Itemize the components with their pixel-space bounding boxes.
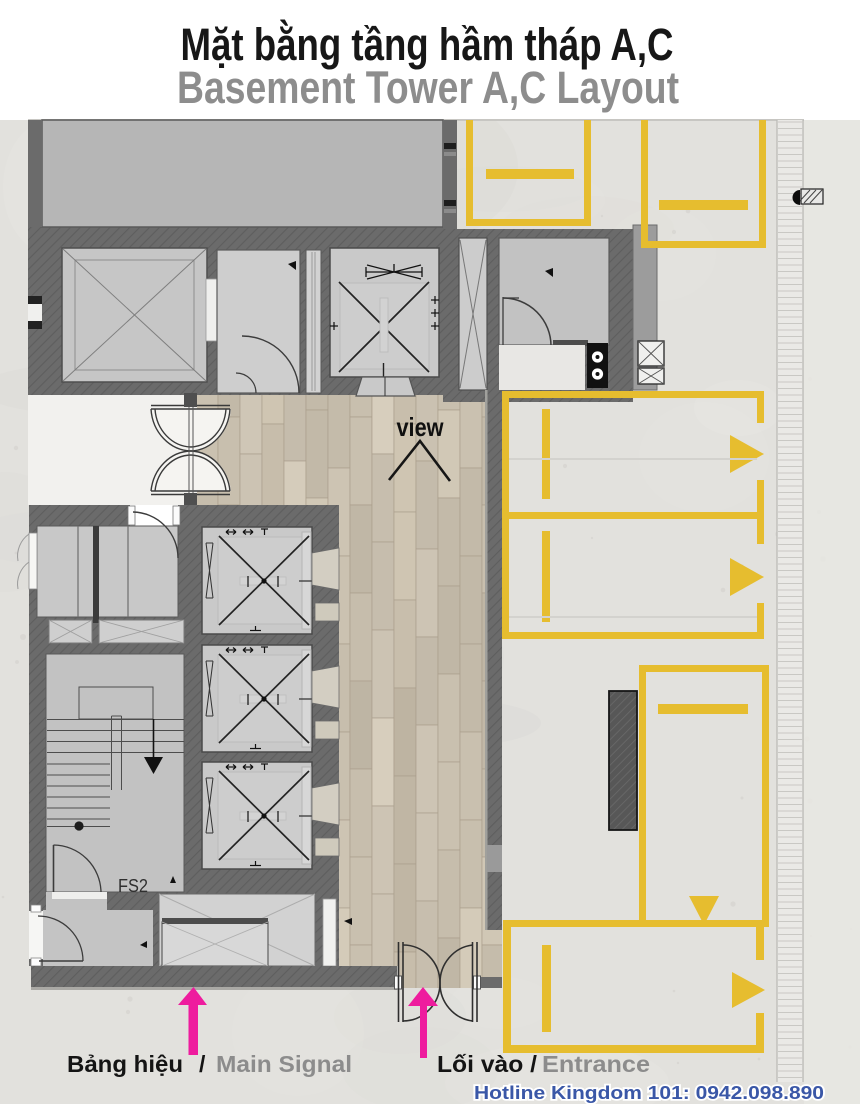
svg-text:FS2: FS2: [118, 876, 148, 896]
svg-text:Basement Tower A,C Layout: Basement Tower A,C Layout: [177, 62, 679, 113]
svg-text:Lối vào /: Lối vào /: [437, 1051, 538, 1077]
svg-text:Entrance: Entrance: [542, 1051, 650, 1077]
svg-text:view: view: [397, 412, 445, 442]
svg-text:Hotline Kingdom 101: 0942.098.: Hotline Kingdom 101: 0942.098.890: [474, 1082, 824, 1103]
svg-text:Main Signal: Main Signal: [216, 1051, 352, 1077]
svg-text:/: /: [199, 1051, 206, 1077]
svg-text:Bảng hiệu: Bảng hiệu: [67, 1051, 183, 1077]
